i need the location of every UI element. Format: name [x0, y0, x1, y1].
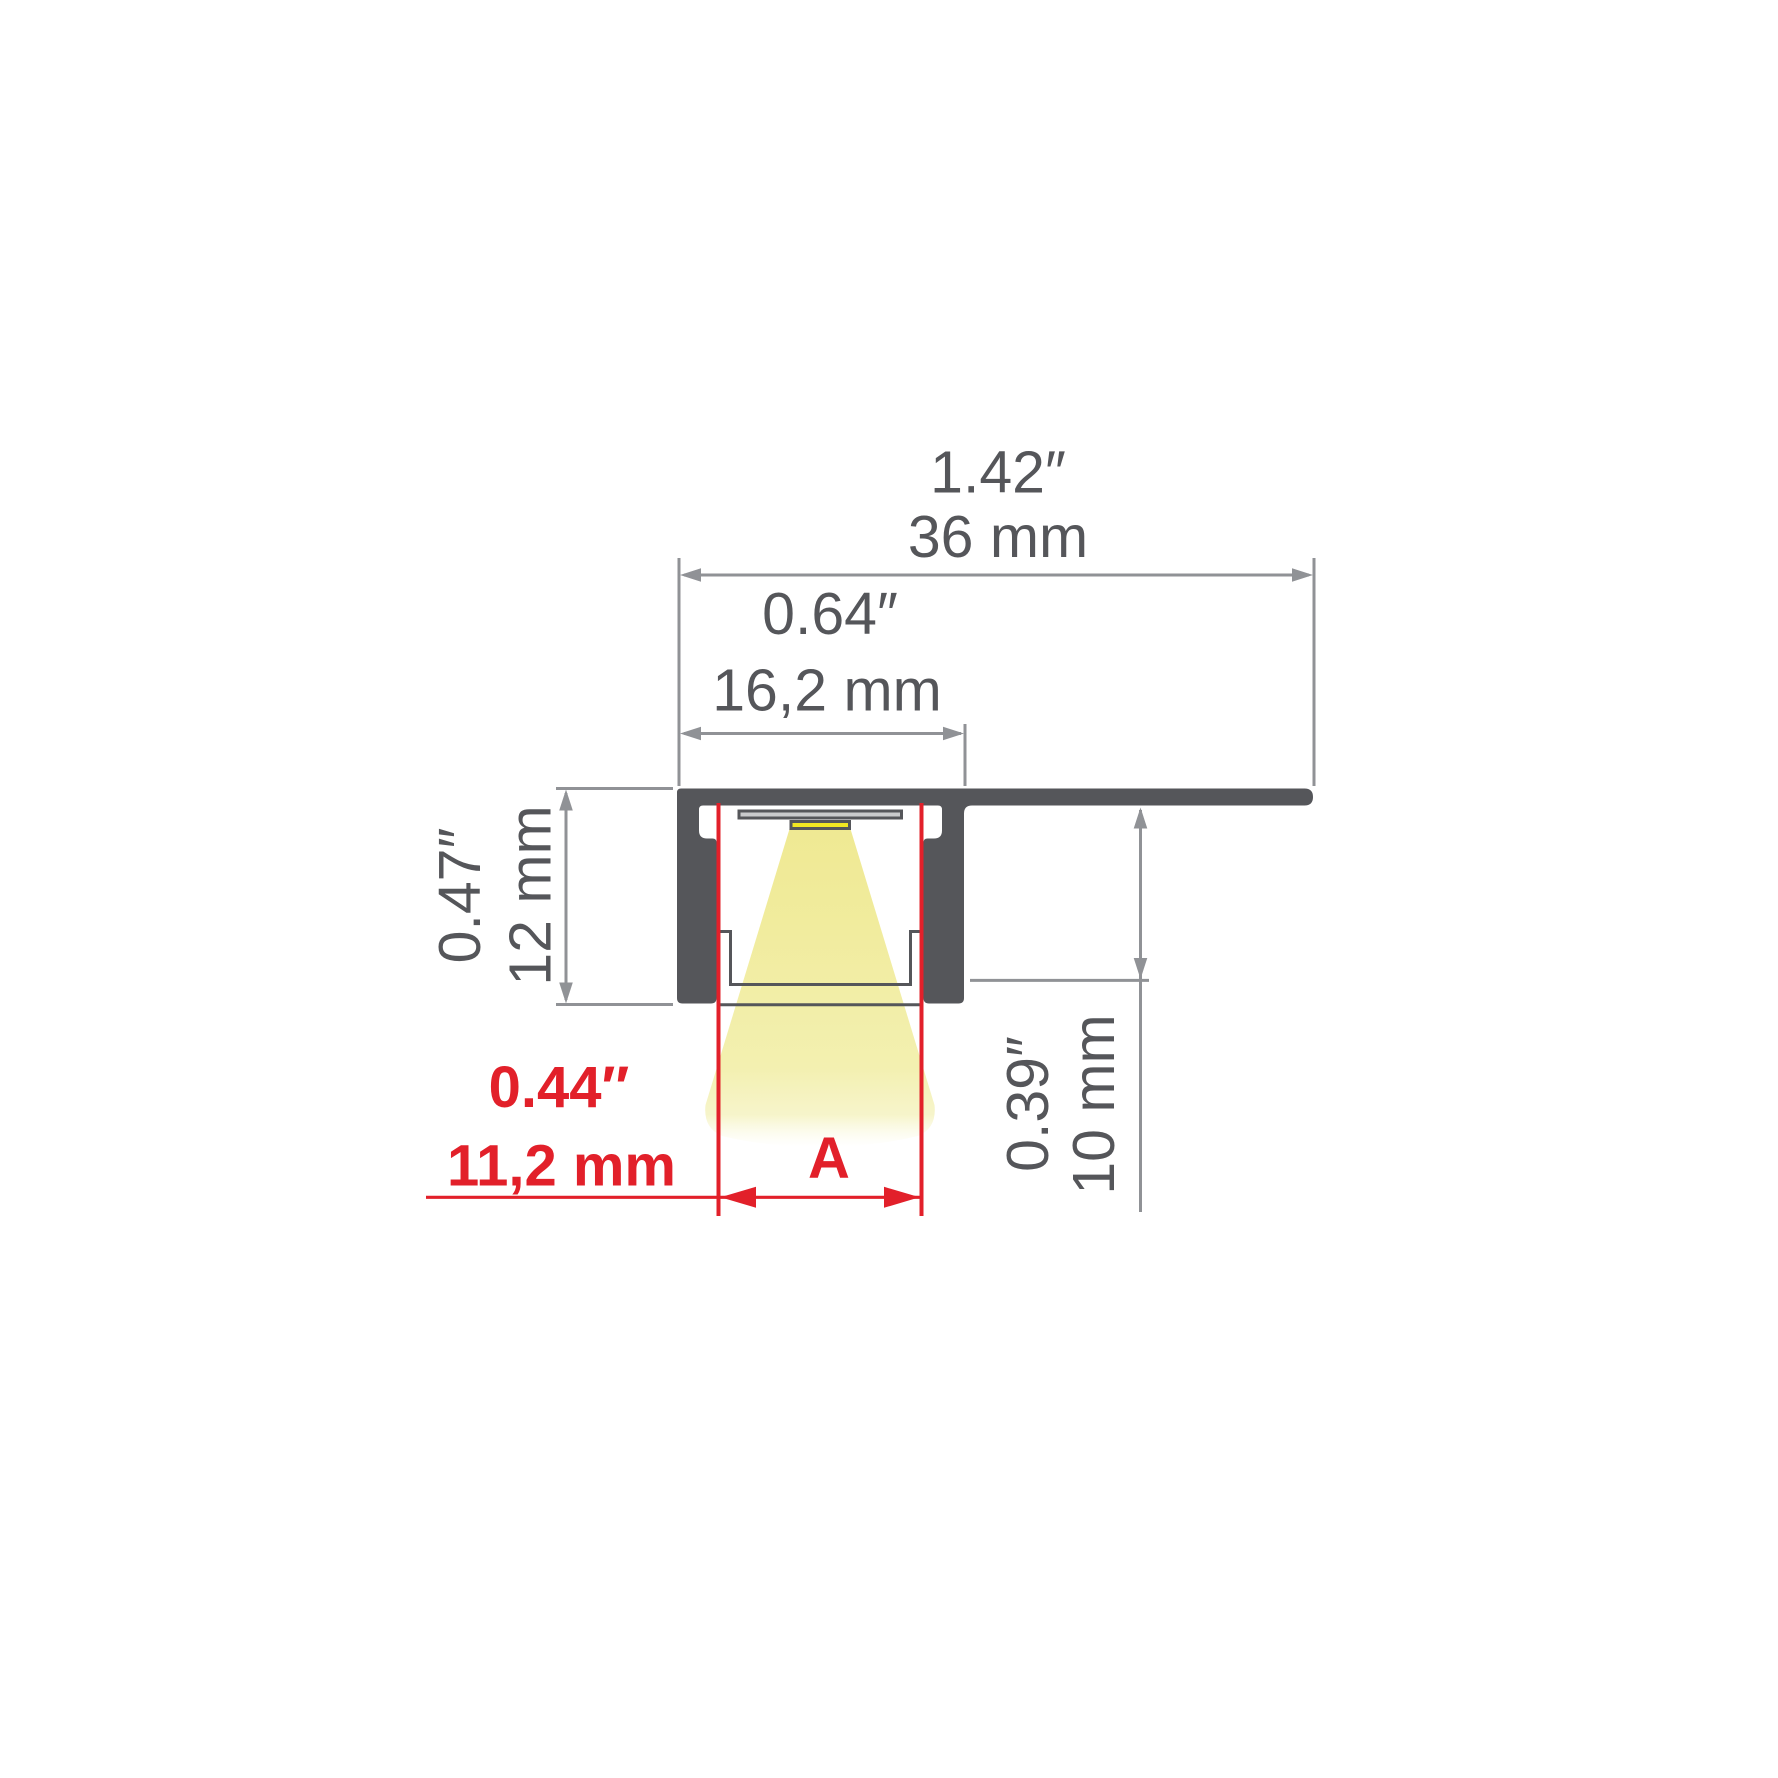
svg-text:36 mm: 36 mm: [908, 504, 1088, 570]
svg-text:A: A: [808, 1126, 850, 1191]
svg-text:1.42″: 1.42″: [930, 440, 1066, 506]
svg-text:16,2 mm: 16,2 mm: [712, 658, 942, 724]
svg-text:0.39″: 0.39″: [995, 1036, 1061, 1172]
svg-text:0.64″: 0.64″: [762, 581, 898, 647]
svg-text:10 mm: 10 mm: [1061, 1014, 1127, 1194]
svg-text:0.47″: 0.47″: [427, 828, 493, 964]
svg-text:0.44″: 0.44″: [489, 1055, 630, 1120]
svg-text:12 mm: 12 mm: [498, 805, 564, 985]
svg-text:11,2 mm: 11,2 mm: [447, 1134, 676, 1199]
